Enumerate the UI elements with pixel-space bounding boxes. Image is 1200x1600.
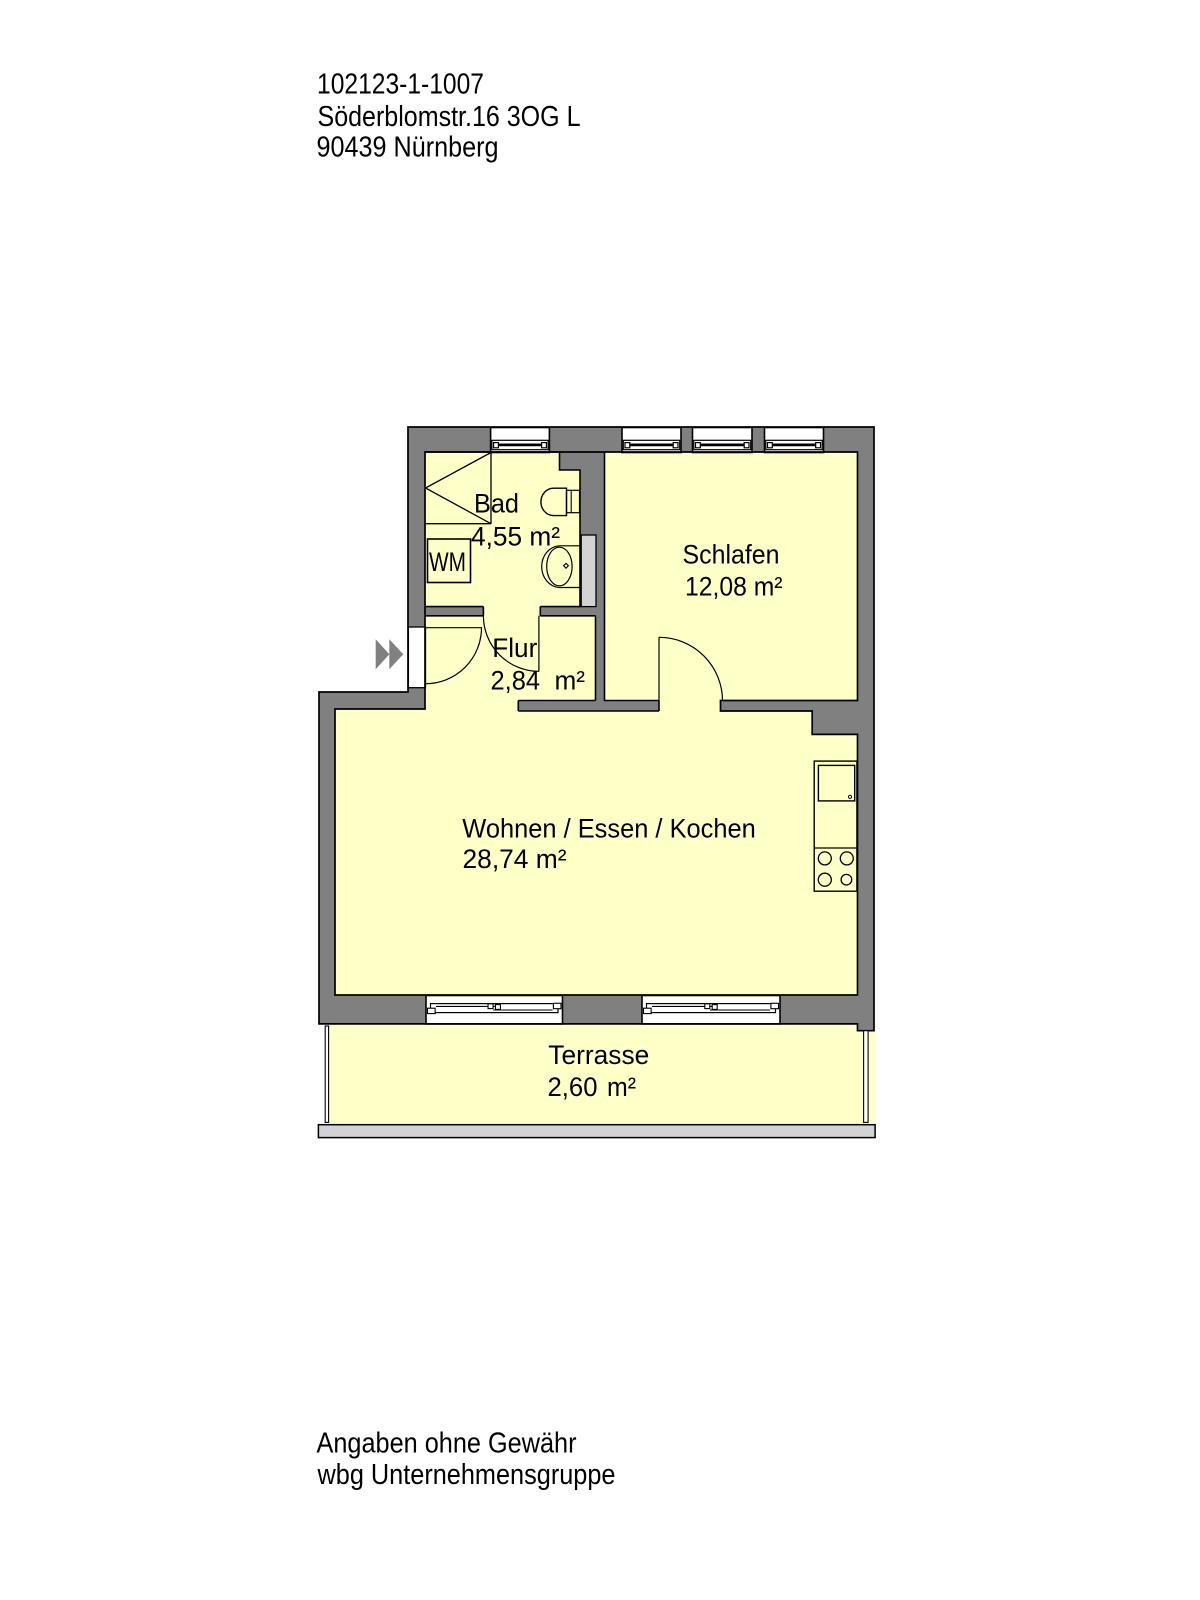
svg-text:Bad: Bad [474,489,519,519]
svg-text:Wohnen / Essen / Kochen: Wohnen / Essen / Kochen [462,813,756,843]
svg-text:4,55 m²: 4,55 m² [471,521,560,551]
svg-text:wbg Unternehmensgruppe: wbg Unternehmensgruppe [317,1459,616,1491]
svg-text:90439 Nürnberg: 90439 Nürnberg [317,132,499,164]
svg-text:Flur: Flur [492,633,537,663]
svg-text:12,08 m²: 12,08 m² [685,572,783,602]
svg-text:Schlafen: Schlafen [683,540,780,570]
svg-text:Angaben ohne Gewähr: Angaben ohne Gewähr [317,1428,577,1460]
svg-text:Söderblomstr.16 3OG L: Söderblomstr.16 3OG L [318,101,581,133]
svg-text:m²: m² [607,1072,636,1102]
svg-text:m²: m² [555,666,586,696]
svg-text:WM: WM [429,547,466,577]
svg-text:28,74 m²: 28,74 m² [463,844,567,874]
svg-text:2,60: 2,60 [548,1072,598,1102]
svg-text:2,84: 2,84 [491,666,541,696]
svg-text:102123-1-1007: 102123-1-1007 [317,69,484,101]
svg-text:Terrasse: Terrasse [548,1040,649,1070]
